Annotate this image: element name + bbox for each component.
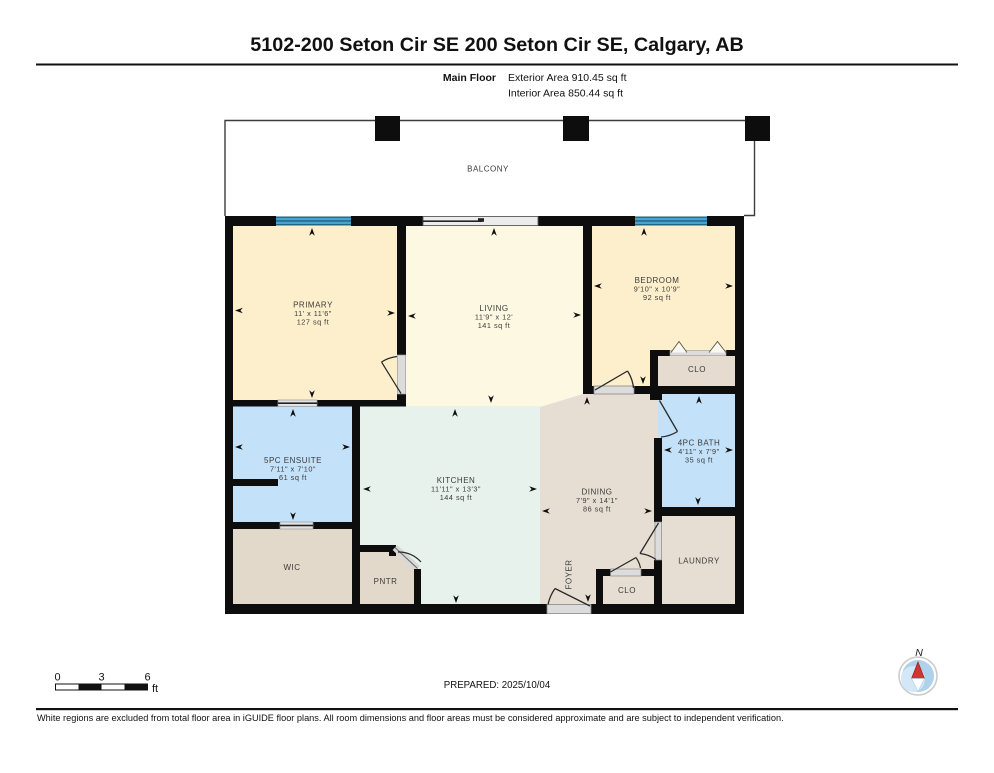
- svg-text:61 sq ft: 61 sq ft: [279, 473, 307, 482]
- svg-text:127 sq ft: 127 sq ft: [297, 318, 330, 327]
- svg-text:PREPARED: 2025/10/04: PREPARED: 2025/10/04: [444, 680, 551, 691]
- svg-text:Main Floor: Main Floor: [443, 72, 496, 84]
- svg-text:6: 6: [144, 672, 150, 684]
- svg-text:White regions are excluded fro: White regions are excluded from total fl…: [37, 713, 784, 723]
- svg-text:86 sq ft: 86 sq ft: [583, 505, 611, 514]
- svg-text:Exterior Area 910.45 sq ft: Exterior Area 910.45 sq ft: [508, 72, 627, 84]
- svg-text:35 sq ft: 35 sq ft: [685, 456, 713, 465]
- svg-text:BALCONY: BALCONY: [467, 165, 509, 174]
- svg-text:Interior Area 850.44 sq ft: Interior Area 850.44 sq ft: [508, 88, 623, 100]
- svg-text:141 sq ft: 141 sq ft: [478, 321, 511, 330]
- svg-text:PNTR: PNTR: [374, 577, 398, 586]
- svg-text:0: 0: [54, 672, 60, 684]
- svg-text:WIC: WIC: [283, 563, 300, 572]
- svg-text:92 sq ft: 92 sq ft: [643, 293, 671, 302]
- svg-text:ft: ft: [152, 683, 158, 695]
- svg-text:N: N: [915, 647, 923, 659]
- svg-text:3: 3: [98, 672, 104, 684]
- svg-text:5102-200 Seton Cir SE 200 Seto: 5102-200 Seton Cir SE 200 Seton Cir SE, …: [250, 34, 744, 56]
- svg-text:FOYER: FOYER: [565, 559, 574, 589]
- svg-text:LAUNDRY: LAUNDRY: [678, 557, 720, 566]
- svg-text:CLO: CLO: [688, 365, 706, 374]
- svg-text:144 sq ft: 144 sq ft: [440, 493, 473, 502]
- svg-text:CLO: CLO: [618, 586, 636, 595]
